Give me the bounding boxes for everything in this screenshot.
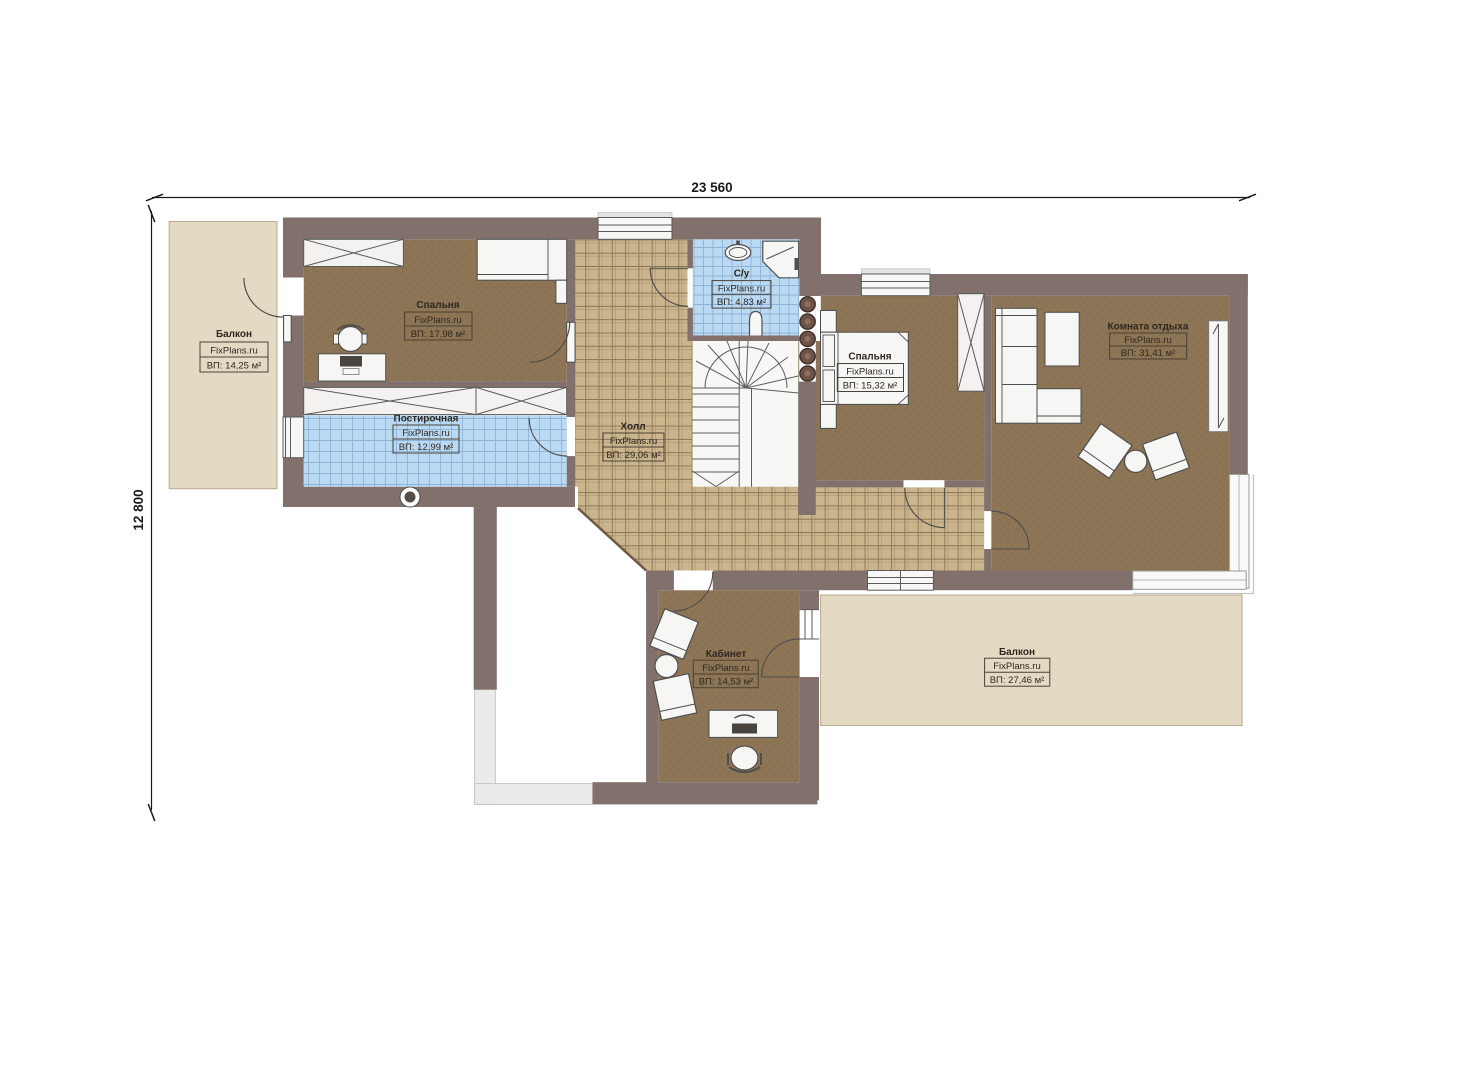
svg-text:Спальня: Спальня xyxy=(416,300,459,311)
svg-text:С/у: С/у xyxy=(734,269,750,280)
svg-text:ВП: 17,98 м²: ВП: 17,98 м² xyxy=(411,329,466,340)
svg-text:Постирочная: Постирочная xyxy=(394,414,459,425)
svg-text:Балкон: Балкон xyxy=(216,329,252,340)
svg-text:Спальня: Спальня xyxy=(848,352,891,363)
svg-text:Кабинет: Кабинет xyxy=(706,648,747,660)
svg-text:ВП: 4,83 м²: ВП: 4,83 м² xyxy=(717,297,766,308)
svg-text:23 560: 23 560 xyxy=(691,180,732,195)
svg-text:ВП: 27,46 м²: ВП: 27,46 м² xyxy=(990,675,1045,686)
svg-text:FixPlans.ru: FixPlans.ru xyxy=(846,367,894,378)
svg-text:FixPlans.ru: FixPlans.ru xyxy=(414,315,462,326)
svg-text:ВП: 14,25 м²: ВП: 14,25 м² xyxy=(207,361,262,372)
svg-text:FixPlans.ru: FixPlans.ru xyxy=(1124,335,1172,346)
svg-text:FixPlans.ru: FixPlans.ru xyxy=(402,428,450,439)
svg-text:ВП: 12,99 м²: ВП: 12,99 м² xyxy=(399,442,454,453)
svg-text:FixPlans.ru: FixPlans.ru xyxy=(993,661,1041,672)
svg-text:FixPlans.ru: FixPlans.ru xyxy=(718,284,766,295)
svg-text:Холл: Холл xyxy=(620,422,645,433)
svg-text:ВП: 31,41 м²: ВП: 31,41 м² xyxy=(1121,348,1176,359)
svg-text:12 800: 12 800 xyxy=(131,489,146,530)
svg-text:ВП: 29,06 м²: ВП: 29,06 м² xyxy=(606,450,661,461)
svg-text:ВП: 15,32 м²: ВП: 15,32 м² xyxy=(843,381,898,392)
svg-text:Комната отдыха: Комната отдыха xyxy=(1108,322,1189,333)
svg-text:FixPlans.ru: FixPlans.ru xyxy=(610,436,658,447)
svg-text:ВП: 14,53 м²: ВП: 14,53 м² xyxy=(699,677,754,688)
svg-text:FixPlans.ru: FixPlans.ru xyxy=(702,663,750,674)
svg-text:FixPlans.ru: FixPlans.ru xyxy=(210,346,258,357)
svg-text:Балкон: Балкон xyxy=(999,647,1035,658)
